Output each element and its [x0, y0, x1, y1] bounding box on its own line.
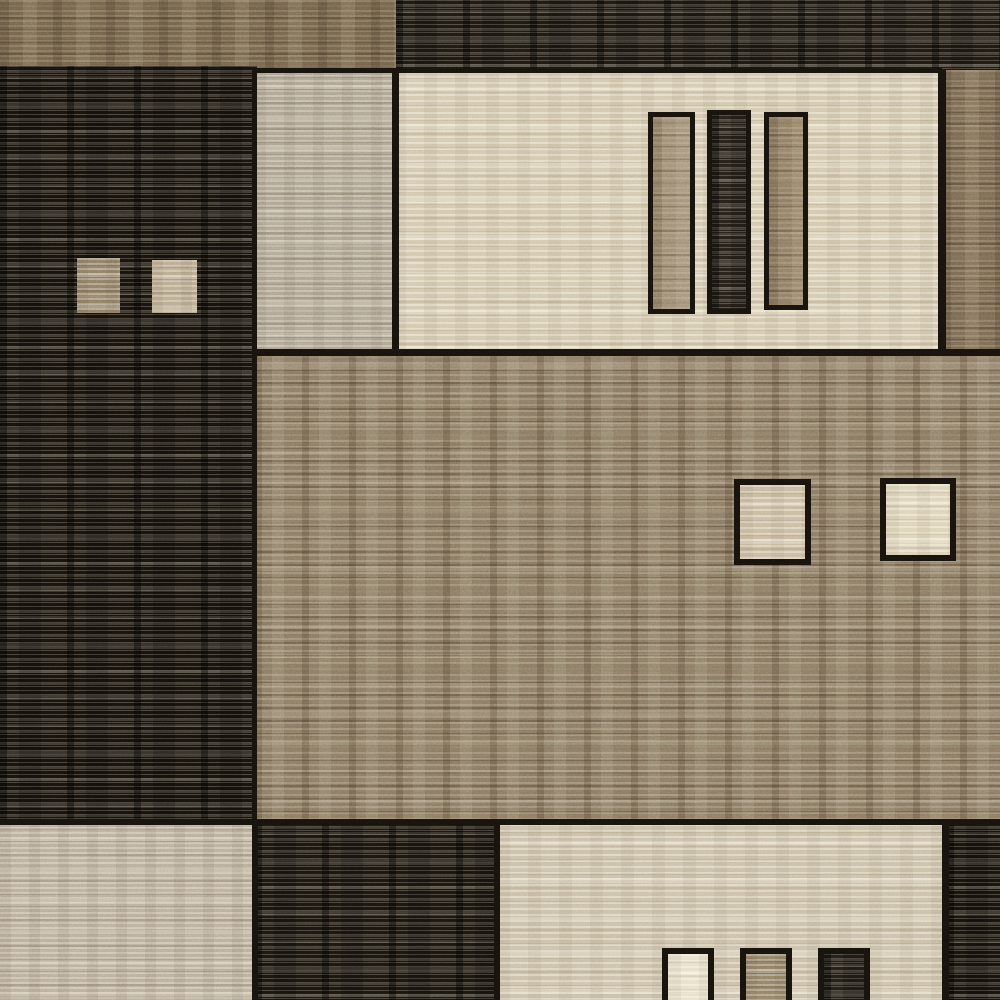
center-square-cream	[880, 478, 956, 561]
rug-photo	[0, 0, 1000, 1000]
seam-under-beige	[255, 349, 1000, 356]
bottom-left-beige-block	[0, 822, 255, 1000]
seam-bottom-beige-left	[494, 824, 500, 1000]
left-small-square-beige	[152, 260, 197, 313]
vertical-bar-tan-2	[764, 112, 808, 310]
bottom-square-dark	[818, 948, 870, 1000]
seam-beige-right-vertical	[938, 70, 946, 354]
bottom-square-tan	[740, 948, 792, 1000]
beige-left-sub-block	[255, 70, 395, 352]
left-dark-column	[0, 66, 257, 822]
vertical-bar-tan-1	[648, 112, 695, 314]
vertical-bar-dark	[707, 110, 751, 314]
seam-left-column-right	[252, 70, 257, 822]
seam-bottom-row	[0, 819, 1000, 825]
bottom-dark-block	[255, 822, 497, 1000]
bottom-right-dark-block	[947, 822, 1000, 1000]
top-dark-strip	[396, 0, 1000, 72]
top-brown-strip	[0, 0, 396, 72]
center-square-beige	[734, 479, 811, 565]
bottom-square-cream	[662, 948, 714, 1000]
seam-bottom-beige-right	[942, 822, 949, 1000]
seam-beige-split-vertical	[392, 70, 399, 352]
tan-center-field	[255, 350, 1000, 822]
right-brown-strip	[942, 70, 1000, 356]
seam-beige-top	[255, 68, 942, 73]
left-small-square-tan	[77, 258, 120, 313]
bottom-beige-block	[497, 824, 947, 1000]
seam-bottom-left-split	[252, 822, 258, 1000]
